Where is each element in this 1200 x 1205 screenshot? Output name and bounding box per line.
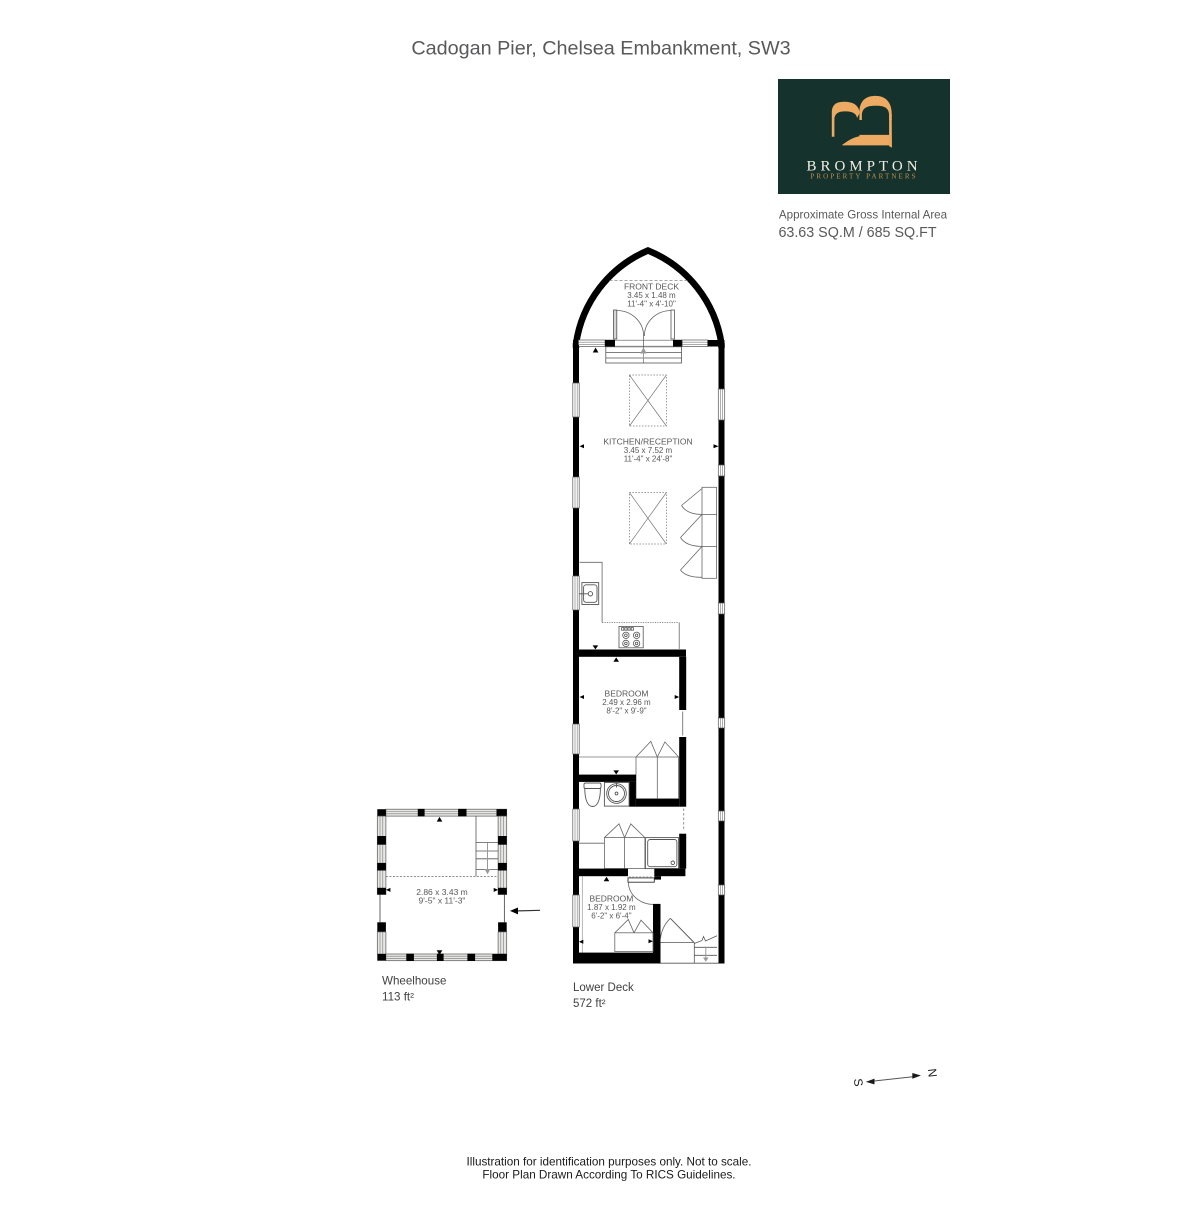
svg-text:8'-2" x 9'-9": 8'-2" x 9'-9" [606,707,646,716]
svg-text:11'-4" x 4'-10": 11'-4" x 4'-10" [627,300,676,309]
svg-text:6'-2" x 6'-4": 6'-2" x 6'-4" [591,912,631,921]
svg-text:Floor Plan Drawn According To: Floor Plan Drawn According To RICS Guide… [482,1168,735,1181]
svg-text:N: N [925,1068,940,1078]
svg-text:FRONT DECK: FRONT DECK [624,282,679,292]
svg-text:Approximate Gross Internal Are: Approximate Gross Internal Area [779,208,948,221]
svg-text:Wheelhouse: Wheelhouse [382,975,446,988]
svg-text:KITCHEN/RECEPTION: KITCHEN/RECEPTION [603,437,692,447]
svg-text:63.63 SQ.M / 685 SQ.FT: 63.63 SQ.M / 685 SQ.FT [778,225,936,241]
svg-text:113 ft²: 113 ft² [382,991,414,1004]
svg-text:9'-5" x 11'-3": 9'-5" x 11'-3" [419,896,466,906]
svg-text:S: S [851,1078,866,1087]
svg-text:BEDROOM: BEDROOM [589,894,633,904]
svg-text:BEDROOM: BEDROOM [605,689,649,699]
svg-text:572 ft²: 572 ft² [573,998,606,1010]
svg-text:PROPERTY PARTNERS: PROPERTY PARTNERS [810,173,917,181]
svg-text:Illustration for identificatio: Illustration for identification purposes… [467,1155,752,1168]
svg-text:Cadogan Pier, Chelsea Embankme: Cadogan Pier, Chelsea Embankment, SW3 [411,38,790,60]
svg-text:11'-4" x 24'-8": 11'-4" x 24'-8" [624,455,673,464]
svg-text:Lower Deck: Lower Deck [573,982,634,994]
